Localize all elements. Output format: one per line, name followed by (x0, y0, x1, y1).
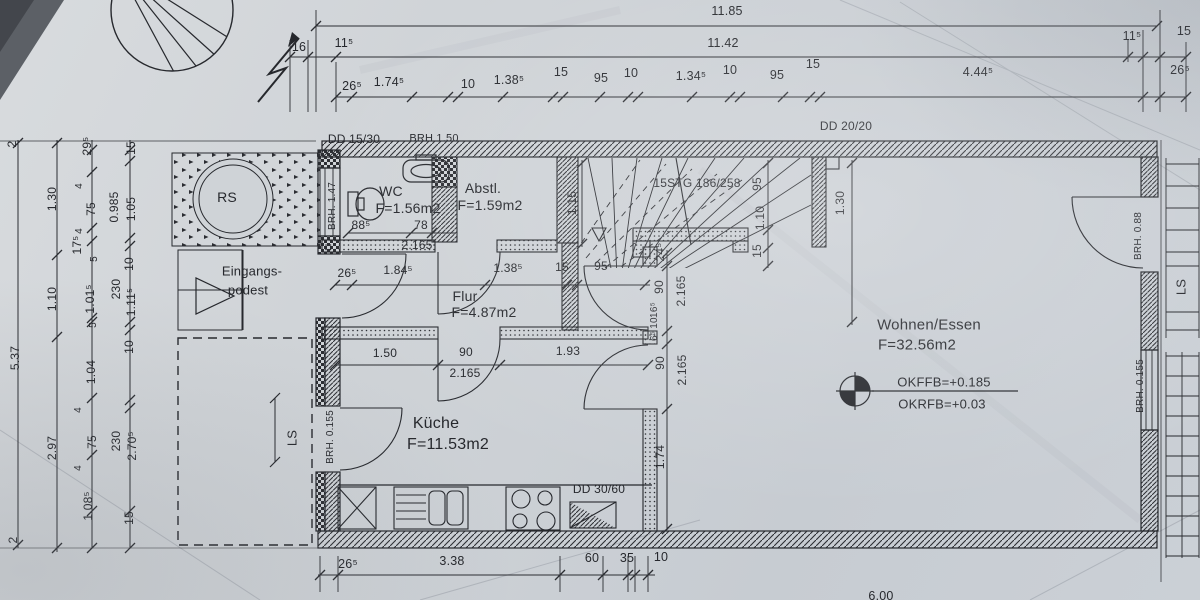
appliance-sink-icon (394, 487, 468, 529)
floor-plan-drawing (0, 0, 1200, 600)
terrace-steps (1166, 158, 1199, 558)
toilet-icon (348, 188, 384, 220)
cooktop-icon (506, 487, 560, 530)
interior-walls (322, 157, 839, 531)
duct-block-icon (570, 502, 616, 528)
rs-circle-icon (193, 159, 273, 239)
terrace-door (1072, 197, 1143, 268)
abstellraum-door (438, 252, 500, 314)
kueche-exterior-door (340, 408, 402, 470)
kitchen-fixtures (338, 485, 652, 530)
entrance-platform (172, 153, 320, 330)
dimension-lines-top (285, 10, 1191, 112)
flur-wohnen-door (584, 266, 648, 330)
floorplan-photo: 11.8511.421611⁵11⁵1526⁵1.74⁵101.38⁵15951… (0, 0, 1200, 600)
entrance-steps-icon (178, 250, 243, 330)
kueche-wohnen-door (584, 345, 648, 409)
dimension-lines-bottom (315, 556, 655, 592)
dimension-lines-interior (330, 158, 857, 534)
photo-artifacts (0, 0, 1200, 600)
kueche-flur-door (438, 339, 500, 401)
cabinet-icon (338, 487, 376, 529)
north-arrow-icon (111, 0, 299, 102)
carport-outline (178, 338, 312, 545)
